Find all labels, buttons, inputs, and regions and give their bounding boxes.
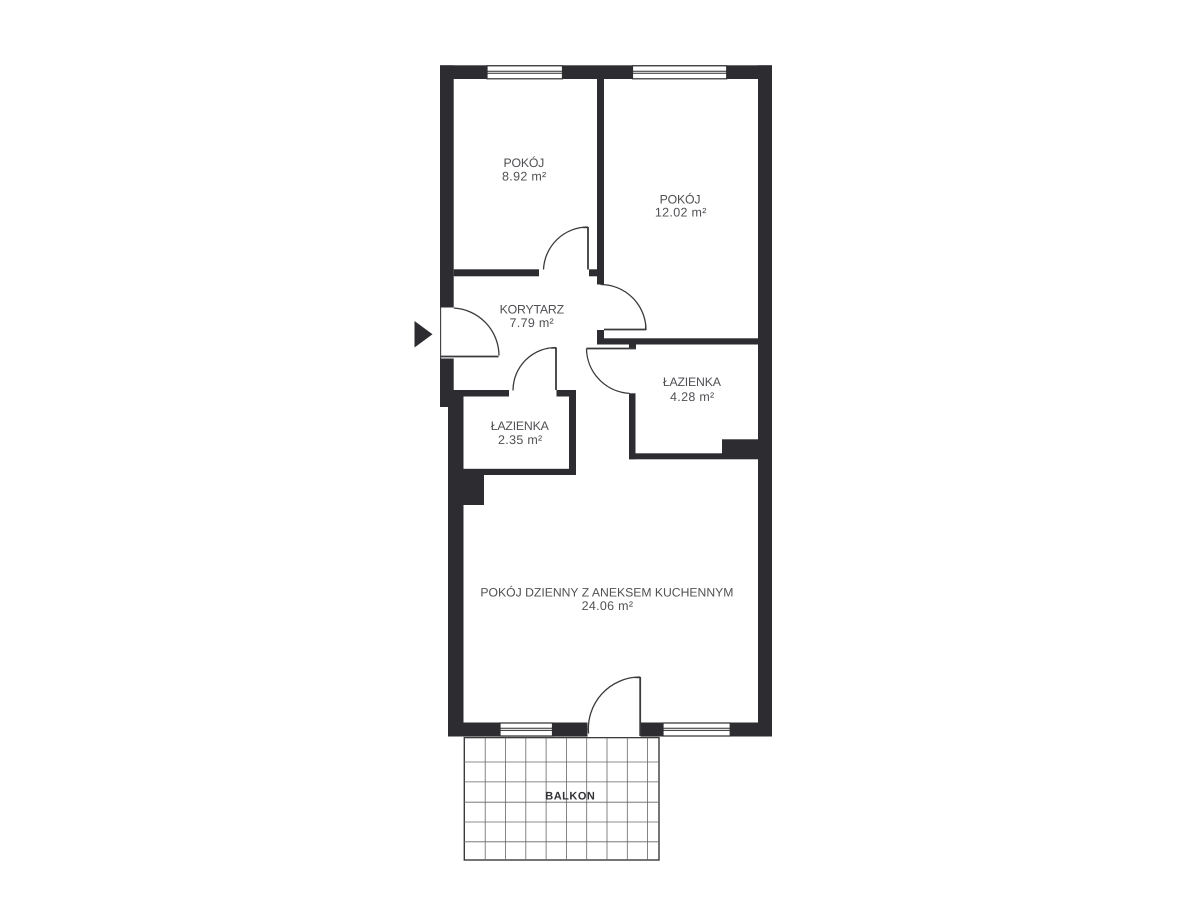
svg-text:POKÓJ: POKÓJ	[660, 193, 701, 207]
svg-text:2.35 m²: 2.35 m²	[498, 433, 542, 447]
svg-text:KORYTARZ: KORYTARZ	[500, 302, 565, 316]
svg-text:4.28 m²: 4.28 m²	[670, 390, 714, 404]
svg-text:8.92 m²: 8.92 m²	[502, 170, 546, 184]
svg-text:ŁAZIENKA: ŁAZIENKA	[491, 419, 550, 433]
svg-text:BALKON: BALKON	[545, 790, 595, 802]
svg-text:24.06 m²: 24.06 m²	[582, 599, 634, 613]
svg-text:7.79 m²: 7.79 m²	[510, 316, 554, 330]
svg-text:ŁAZIENKA: ŁAZIENKA	[663, 375, 722, 389]
svg-text:POKÓJ: POKÓJ	[503, 156, 544, 170]
svg-text:POKÓJ DZIENNY Z ANEKSEM KUCHE: POKÓJ DZIENNY Z ANEKSEM KUCHENNYM	[480, 585, 733, 599]
svg-text:12.02 m²: 12.02 m²	[655, 206, 707, 220]
